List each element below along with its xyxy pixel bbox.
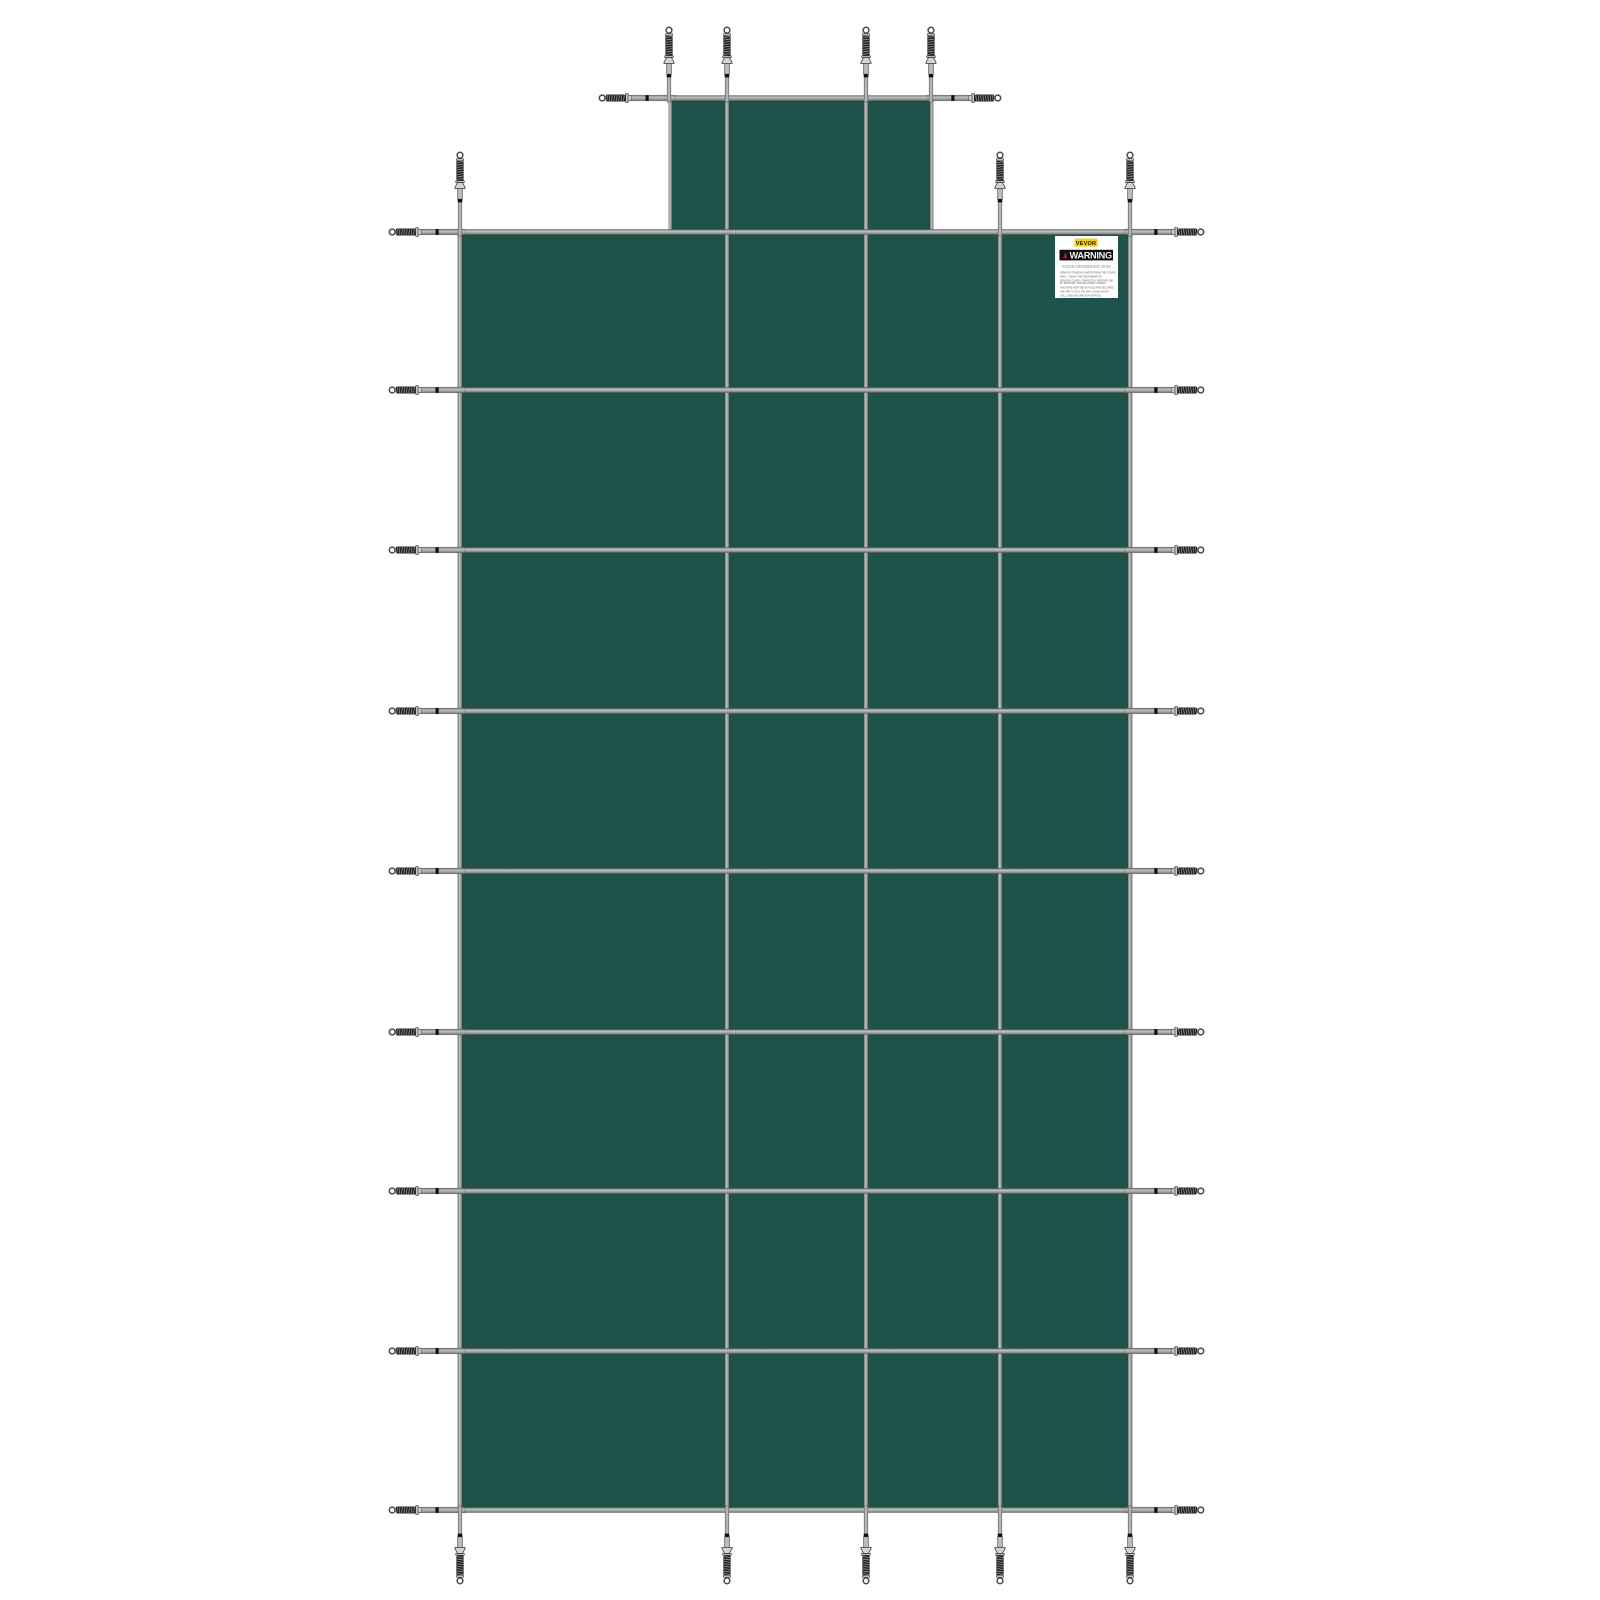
svg-text:WHO - CANNOT BE SEEN BENEATH: WHO - CANNOT BE SEEN BENEATH [1060, 276, 1102, 279]
svg-text:CALL 1-855-385-1880 FOR SERVIC: CALL 1-855-385-1880 FOR SERVICE [1060, 294, 1102, 297]
svg-text:WARNING: WARNING [1070, 251, 1112, 261]
svg-text:VEVOR: VEVOR [1076, 241, 1097, 247]
svg-text:BY BATHERS. NON-SECURED COVERS: BY BATHERS. NON-SECURED COVERS [1060, 282, 1106, 285]
svg-text:ANCHORS MUST BE IN PLACE AND S: ANCHORS MUST BE IN PLACE AND SECURED [1060, 286, 1114, 289]
svg-text:FAILURE TO FOLLOW MAY CAUSE IN: FAILURE TO FOLLOW MAY CAUSE INJURY [1060, 291, 1110, 294]
svg-text:AVOID DROWNING RISK: AVOID DROWNING RISK [1062, 264, 1112, 269]
svg-text:REMOVE STANDING WATER FROM THE: REMOVE STANDING WATER FROM THE COVER [1060, 271, 1116, 274]
